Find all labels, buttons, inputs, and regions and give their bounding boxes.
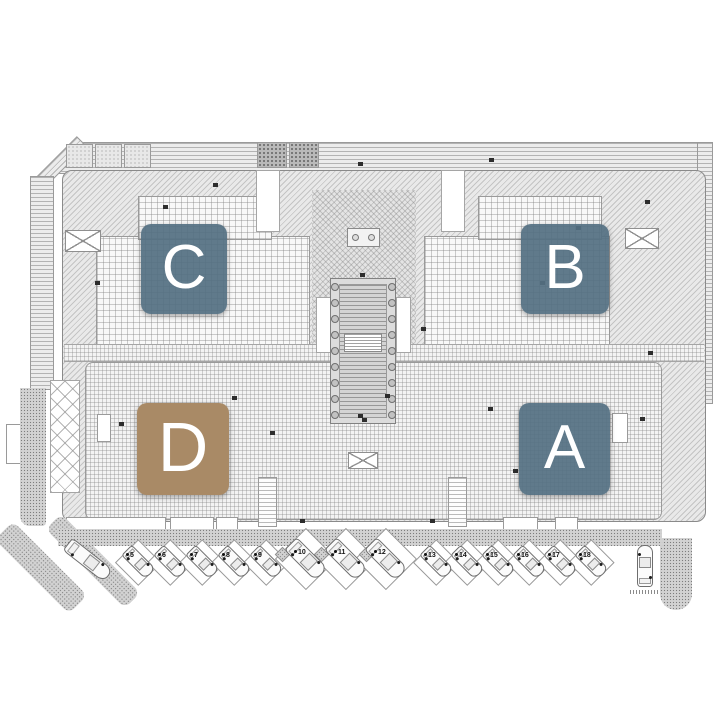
pool-column-icon — [331, 363, 339, 371]
pool-column-icon — [388, 283, 396, 291]
pool-columns-left — [330, 283, 339, 419]
door-marker-icon — [163, 205, 168, 209]
parking-space-number: 17 — [548, 552, 560, 559]
block-c-label: C — [162, 232, 207, 303]
parking-space-number: 16 — [517, 552, 529, 559]
dimension-label — [630, 590, 660, 594]
block-b-label: B — [544, 232, 585, 303]
door-marker-icon — [489, 158, 494, 162]
tree-bed-icon — [66, 144, 93, 168]
pool-column-icon — [331, 379, 339, 387]
vent-dot-icon — [352, 234, 359, 241]
pool-columns-right — [387, 283, 396, 419]
pool-column-icon — [331, 299, 339, 307]
door-marker-icon — [513, 469, 518, 473]
pool-stairs — [344, 333, 382, 352]
driveway-right — [660, 538, 692, 610]
building-block-a[interactable]: A — [519, 403, 610, 495]
door-marker-icon — [119, 422, 124, 426]
door-marker-icon — [362, 418, 367, 422]
roof-slot — [256, 170, 280, 232]
parking-space-number: 9 — [254, 552, 262, 559]
pool-icon — [330, 278, 396, 424]
parking-space-number: 15 — [486, 552, 498, 559]
door-marker-icon — [421, 327, 426, 331]
pool-column-icon — [388, 315, 396, 323]
pool-column-icon — [331, 315, 339, 323]
door-marker-icon — [358, 162, 363, 166]
tree-bed-icon — [289, 142, 319, 168]
site-plan: 56789101112131415161718 C B D A — [0, 0, 720, 720]
pool-column-icon — [388, 331, 396, 339]
door-marker-icon — [232, 396, 237, 400]
car-icon — [637, 545, 653, 587]
door-marker-icon — [488, 407, 493, 411]
door-marker-icon — [648, 351, 653, 355]
stair-icon — [258, 477, 277, 527]
driveway-left — [20, 388, 46, 526]
block-a-label: A — [544, 412, 585, 483]
tree-bed-icon — [124, 144, 151, 168]
block-d-label: D — [158, 407, 209, 487]
door-marker-icon — [270, 431, 275, 435]
stair-icon — [448, 477, 467, 527]
pool-column-icon — [331, 283, 339, 291]
door-marker-icon — [95, 281, 100, 285]
perimeter-deck-left — [30, 176, 54, 390]
tree-bed-icon — [95, 144, 122, 168]
parking-space-number: 11 — [334, 549, 345, 556]
skylight-x-icon — [348, 452, 378, 469]
parking-space-number: 13 — [424, 552, 436, 559]
tree-bed-icon — [257, 142, 287, 168]
parking-space-number: 7 — [190, 552, 198, 559]
parking-space-number: 12 — [374, 549, 386, 556]
door-marker-icon — [360, 273, 365, 277]
parking-space-number: 10 — [294, 549, 306, 556]
door-marker-icon — [640, 417, 645, 421]
pool-column-icon — [388, 379, 396, 387]
pool-column-icon — [331, 395, 339, 403]
building-block-c[interactable]: C — [141, 224, 227, 314]
door-marker-icon — [213, 183, 218, 187]
pool-column-icon — [331, 347, 339, 355]
pool-side-walk — [396, 297, 411, 353]
door-marker-icon — [645, 200, 650, 204]
parking-space-number: 6 — [158, 552, 166, 559]
pool-column-icon — [388, 411, 396, 419]
pool-column-icon — [331, 331, 339, 339]
building-block-d[interactable]: D — [137, 403, 229, 495]
pool-column-icon — [388, 363, 396, 371]
door-marker-icon — [430, 519, 435, 523]
parking-space-number: 8 — [222, 552, 230, 559]
pool-side-walk — [316, 297, 331, 353]
parking-space-number: 14 — [455, 552, 467, 559]
edge-terrace — [97, 414, 111, 442]
parking-space-number: 5 — [126, 552, 134, 559]
skylight-x-icon — [65, 230, 101, 252]
vent-dot-icon — [368, 234, 375, 241]
ramp-icon — [50, 380, 80, 493]
parking-space-number: 18 — [579, 552, 591, 559]
edge-terrace — [612, 413, 628, 443]
door-marker-icon — [385, 394, 390, 398]
pool-column-icon — [388, 299, 396, 307]
pool-column-icon — [331, 411, 339, 419]
car-windshield — [639, 557, 651, 568]
building-block-b[interactable]: B — [521, 224, 609, 314]
roof-vent-icon — [347, 228, 380, 247]
roof-slot — [441, 170, 465, 232]
door-marker-icon — [300, 519, 305, 523]
skylight-x-icon — [625, 228, 659, 249]
pool-column-icon — [388, 347, 396, 355]
